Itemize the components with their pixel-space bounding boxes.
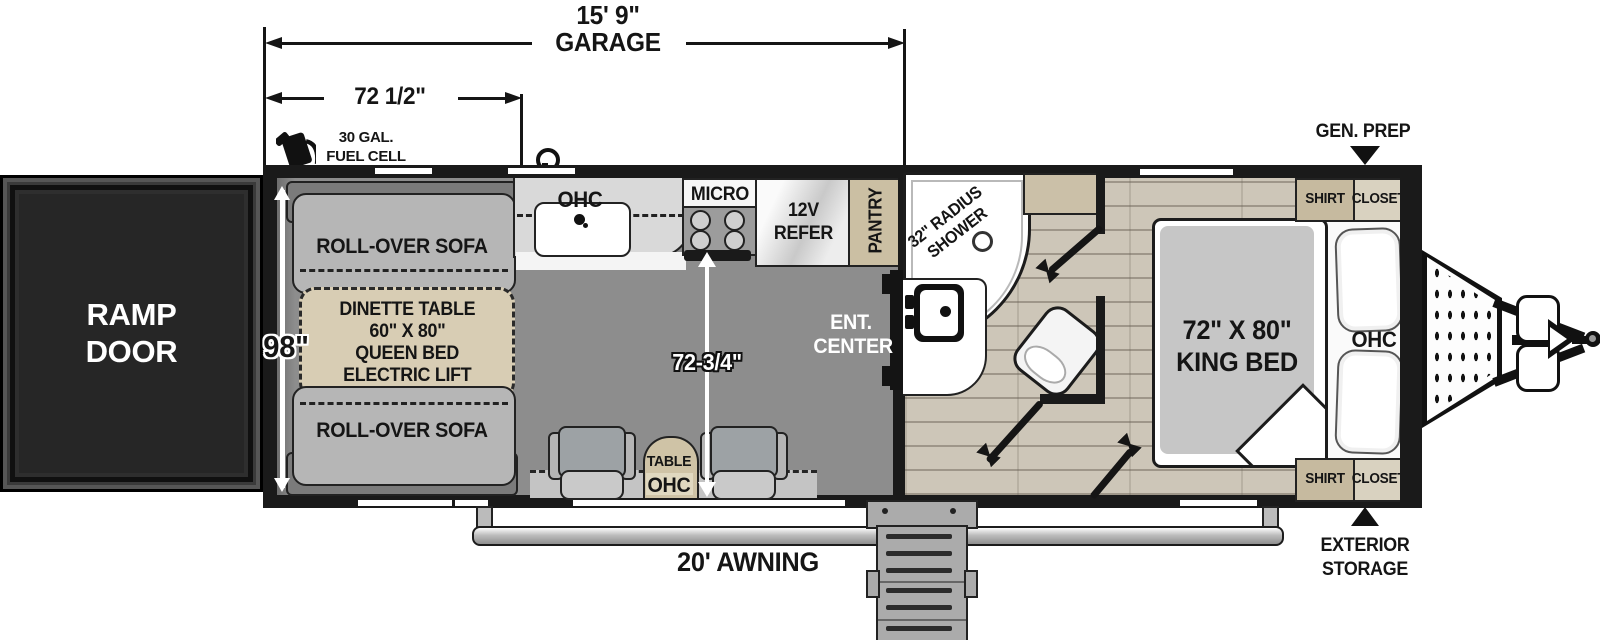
dim-72-line xyxy=(705,258,709,494)
sofa-top-label: ROLL-OVER SOFA xyxy=(303,236,500,258)
pantry-label: PANTRY xyxy=(867,183,886,258)
ramp-door: RAMP DOOR xyxy=(0,175,263,492)
floorplan-canvas: 15' 9" GARAGE 72 1/2" 30 GAL. FUEL CELL … xyxy=(0,0,1600,640)
dinette-queen-bed: DINETTE TABLE 60" X 80" QUEEN BED ELECTR… xyxy=(299,287,515,399)
king-bed-label-line2: KING BED xyxy=(1162,348,1312,376)
step-tread xyxy=(886,626,952,631)
bath-faucet-icon xyxy=(905,315,914,329)
dinette-label-line2: 60" X 80" xyxy=(369,322,445,342)
front-cap-wall xyxy=(1400,165,1422,508)
window-top-2 xyxy=(508,168,575,174)
range-handle xyxy=(684,250,751,261)
step-tread xyxy=(886,588,952,593)
bath-sink-drain xyxy=(940,306,951,317)
gen-prep-label: GEN. PREP xyxy=(1299,122,1427,142)
ramp-door-label-line1: RAMP xyxy=(86,299,176,332)
garage-length-label-line2: GARAGE xyxy=(514,29,702,56)
sofa-bottom-fold-line xyxy=(300,402,508,405)
range-cooktop xyxy=(682,206,757,256)
garage-width-label: 72 1/2" xyxy=(334,84,447,109)
shower-drain-icon xyxy=(972,231,993,252)
shirt-closet-cell: CLOSET xyxy=(1355,460,1402,500)
shirt-closet-cell: SHIRT xyxy=(1297,180,1355,220)
bedroom-ohc-label: OHC xyxy=(1346,328,1402,351)
chair-cushion xyxy=(712,470,776,500)
window-top-1 xyxy=(375,168,432,174)
exterior-storage-label-line2: STORAGE xyxy=(1301,560,1429,580)
garage-dim-line-left xyxy=(281,42,532,45)
bath-wall-right xyxy=(1096,296,1105,404)
garage-length-label-line1: 15' 9" xyxy=(514,2,702,29)
dim-98-arrow-up xyxy=(274,186,290,200)
platform-bolt xyxy=(950,508,956,514)
garage-dim-tick-right xyxy=(903,29,906,174)
fuel-cell-label-line1: 30 GAL. xyxy=(320,130,412,146)
bath-wall-bottom xyxy=(1040,394,1105,404)
dinette-label-line1: DINETTE TABLE xyxy=(339,300,475,320)
bath-sink xyxy=(914,284,964,342)
burner-icon xyxy=(724,230,745,251)
gen-prep-arrow xyxy=(1350,146,1380,165)
width-dim-arrow-left xyxy=(265,92,282,104)
step-tread xyxy=(886,605,952,610)
entry-steps xyxy=(876,525,968,640)
window-bottom-3 xyxy=(573,500,845,506)
step-side-tab xyxy=(964,570,978,598)
shirt-closet-top: SHIRT CLOSET xyxy=(1295,178,1404,222)
step-tread xyxy=(886,568,952,573)
garage-interior-length-label: 72-3/4" xyxy=(651,350,764,374)
awning-label: 20' AWNING xyxy=(635,548,861,576)
window-top-3 xyxy=(1140,169,1233,175)
width-dim-tick-right xyxy=(520,94,523,174)
ent-center-label-line1: ENT. xyxy=(813,312,888,334)
exterior-storage-label-line1: EXTERIOR xyxy=(1301,536,1429,556)
step-side-tab xyxy=(866,570,880,598)
dim-72-arrow-up xyxy=(698,252,716,267)
step-tread xyxy=(886,534,952,539)
shirt-closet-cell: CLOSET xyxy=(1355,180,1402,220)
fuel-cell-label-line2: FUEL CELL xyxy=(314,149,418,165)
step-divider xyxy=(878,619,966,621)
micro-label: MICRO xyxy=(690,185,748,205)
dinette-label-line4: ELECTRIC LIFT xyxy=(343,366,471,386)
wall-garage-bath-bottom xyxy=(893,390,905,498)
width-dim-line-right xyxy=(458,97,506,100)
refer-label-line2: REFER xyxy=(774,224,833,244)
burner-icon xyxy=(724,210,745,231)
closet-label-shirt: SHIRT xyxy=(1305,192,1344,207)
ramp-door-label-line2: DOOR xyxy=(86,336,178,369)
window-bottom-1 xyxy=(358,500,452,506)
kitchen-ohc-label: OHC xyxy=(552,188,608,211)
coupler-triangle-inner xyxy=(1550,327,1567,351)
platform-bolt xyxy=(882,508,888,514)
step-tread xyxy=(886,551,952,556)
garage-chair xyxy=(548,424,632,497)
width-dim-line-left xyxy=(281,97,324,100)
closet-label-closet: CLOSET xyxy=(1352,192,1406,207)
entertainment-center-tab xyxy=(882,274,892,294)
kitchen-faucet-icon xyxy=(574,214,585,225)
step-divider xyxy=(878,581,966,583)
king-bed-label-line1: 72" X 80" xyxy=(1162,316,1312,344)
ent-center-label-line2: CENTER xyxy=(813,336,888,358)
dinette-label-line3: QUEEN BED xyxy=(355,344,459,364)
hitch-ball-highlight xyxy=(1589,335,1596,342)
garage-dim-line-right xyxy=(686,42,889,45)
window-bottom-4 xyxy=(1180,500,1257,506)
bath-cabinet xyxy=(1023,173,1105,215)
chair-cushion xyxy=(560,470,624,500)
refrigerator: 12V REFER xyxy=(755,178,852,267)
closet-label-shirt: SHIRT xyxy=(1305,472,1344,487)
pillow xyxy=(1334,349,1404,455)
entertainment-center-tab xyxy=(882,366,892,386)
table-label: TABLE xyxy=(643,454,696,470)
dim-72-arrow-down xyxy=(698,482,716,497)
dim-98-arrow-down xyxy=(274,478,290,492)
shirt-closet-bottom: SHIRT CLOSET xyxy=(1295,458,1404,502)
exterior-storage-arrow xyxy=(1351,507,1379,526)
rock-guard-vents xyxy=(1430,263,1494,415)
table-ohc-label: OHC xyxy=(643,475,696,497)
bath-sink-basin xyxy=(920,290,958,336)
pillow xyxy=(1334,227,1404,333)
hitch-ball-icon xyxy=(1585,331,1600,347)
burner-icon xyxy=(690,210,711,231)
refer-label-line1: 12V xyxy=(788,201,819,221)
body-width-label: 98" xyxy=(262,331,311,364)
sofa-top-fold-line xyxy=(300,269,508,272)
sofa-bottom-label: ROLL-OVER SOFA xyxy=(303,420,500,442)
garage-dim-arrow-left xyxy=(265,37,282,49)
burner-icon xyxy=(690,230,711,251)
shirt-closet-cell: SHIRT xyxy=(1297,460,1355,500)
bath-faucet-icon xyxy=(905,295,914,309)
closet-label-closet: CLOSET xyxy=(1352,472,1406,487)
